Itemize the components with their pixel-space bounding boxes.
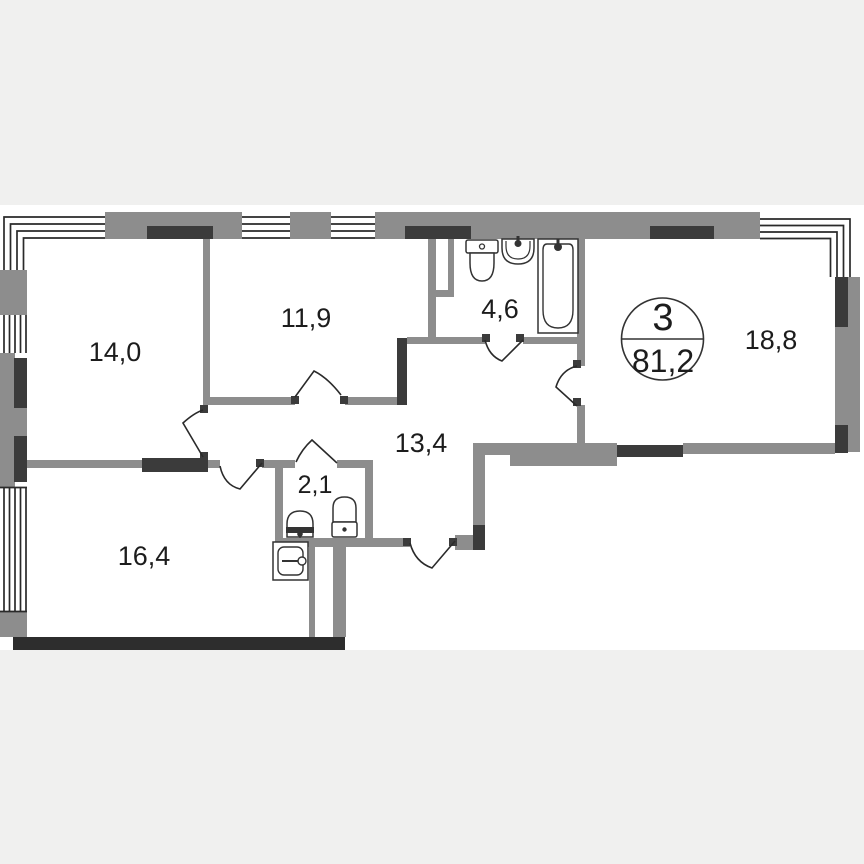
wall: [333, 547, 346, 637]
wall-block: [617, 445, 683, 457]
wall: [203, 239, 210, 405]
wall-block: [142, 458, 208, 472]
room-label-hallway: 13,4: [395, 428, 448, 458]
window-block: [835, 425, 848, 453]
wall: [309, 547, 315, 637]
toilet-tank: [466, 240, 498, 253]
door-jamb: [573, 398, 581, 406]
faucet-icon: [515, 240, 522, 247]
wall: [577, 405, 585, 443]
apartment-badge: 3 81,2: [622, 297, 704, 380]
window-block: [14, 436, 27, 482]
room-label-bedroom-1: 14,0: [89, 337, 142, 367]
floor-plan-page: 14,0 11,9 4,6 18,8 13,4 2,1 16,4 3 81,2: [0, 0, 864, 864]
wall: [428, 239, 436, 343]
wall: [0, 353, 15, 487]
window-block: [405, 226, 471, 239]
wall: [523, 337, 583, 344]
window-block: [14, 358, 27, 408]
wall-block: [397, 338, 407, 405]
wash-basin-symbol: [502, 236, 534, 264]
window-block: [835, 277, 848, 327]
wall: [473, 443, 617, 455]
wall-bottom-black: [13, 637, 345, 650]
wall: [0, 270, 27, 315]
toilet-bowl: [470, 253, 494, 281]
room-label-bedroom-2: 11,9: [281, 303, 332, 333]
wall: [203, 397, 295, 405]
wc-toilet-button: [342, 527, 346, 531]
wall: [448, 239, 454, 297]
room-label-kitchen: 16,4: [118, 541, 171, 571]
wall: [510, 455, 617, 466]
kitchen-sink-symbol: [273, 542, 308, 580]
door-jamb: [340, 396, 348, 404]
wall: [15, 408, 27, 436]
wall: [0, 612, 27, 637]
window-block: [650, 226, 714, 239]
wall: [683, 443, 835, 454]
wc-toilet-symbol: [332, 497, 357, 537]
wall: [27, 460, 142, 468]
room-label-living-room: 18,8: [745, 325, 798, 355]
wall: [208, 460, 220, 468]
door-jamb: [291, 396, 299, 404]
badge-total-area: 81,2: [632, 343, 694, 379]
wall: [345, 397, 397, 405]
floor-plan-svg: 14,0 11,9 4,6 18,8 13,4 2,1 16,4 3 81,2: [0, 0, 864, 864]
wc-toilet-bowl: [333, 497, 356, 522]
window-block: [147, 226, 213, 239]
wall: [436, 290, 454, 297]
room-label-bathroom: 4,6: [481, 294, 519, 324]
door-jamb: [449, 538, 457, 546]
wall: [290, 212, 331, 239]
wall-block: [473, 525, 485, 550]
faucet-icon: [298, 557, 306, 565]
wc-basin-symbol: [286, 511, 314, 538]
wall: [365, 460, 373, 538]
door-jamb: [200, 405, 208, 413]
wall: [455, 535, 473, 550]
badge-rooms-count: 3: [652, 297, 673, 339]
wall: [407, 337, 485, 344]
wall: [275, 460, 283, 538]
wall: [473, 455, 485, 525]
faucet-icon: [554, 243, 562, 251]
room-label-wc: 2,1: [298, 471, 333, 499]
bathtub-symbol: [538, 239, 578, 333]
